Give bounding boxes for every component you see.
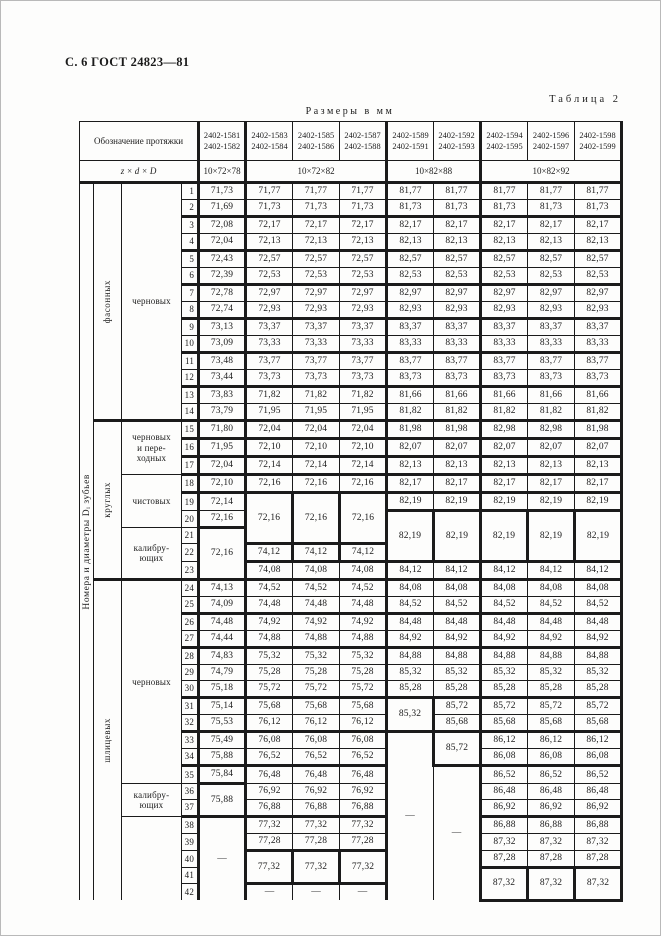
value-cell: 82,57 [481, 251, 528, 268]
value-cell: 82,17 [528, 217, 575, 234]
value-cell: 74,12 [246, 544, 293, 562]
value-cell: 84,52 [434, 597, 481, 614]
value-cell: 81,77 [434, 183, 481, 200]
size-cell: 10×72×82 [246, 161, 387, 183]
value-cell: 86,88 [575, 817, 622, 834]
value-cell: 84,12 [387, 562, 434, 580]
value-cell: 86,52 [481, 766, 528, 784]
value-cell: 72,57 [293, 251, 340, 268]
value-cell: 82,17 [387, 217, 434, 234]
value-cell: 81,66 [434, 387, 481, 404]
value-cell: 75,32 [246, 648, 293, 665]
value-cell: 87,32 [575, 834, 622, 851]
value-cell: 83,37 [575, 319, 622, 336]
value-cell: 75,68 [246, 698, 293, 715]
value-cell: 84,48 [387, 614, 434, 631]
value-cell: 82,17 [575, 217, 622, 234]
category-label [122, 817, 182, 901]
value-cell: 72,17 [246, 217, 293, 234]
value-cell: 87,28 [575, 851, 622, 868]
value-cell: 72,57 [246, 251, 293, 268]
row-number: 38 [182, 817, 199, 834]
value-cell: 85,32 [387, 698, 434, 732]
value-cell: 72,93 [293, 302, 340, 319]
value-cell: 83,33 [387, 336, 434, 353]
row-number: 10 [182, 336, 199, 353]
value-cell: 72,16 [199, 511, 246, 528]
value-cell: 85,28 [434, 681, 481, 698]
value-cell: 83,73 [434, 370, 481, 387]
value-cell: 84,48 [481, 614, 528, 631]
value-cell: 71,95 [340, 404, 387, 421]
value-cell: 72,57 [340, 251, 387, 268]
value-cell: 82,13 [528, 234, 575, 251]
value-cell: 77,32 [340, 851, 387, 884]
value-cell: 82,57 [528, 251, 575, 268]
value-cell: 75,88 [199, 784, 246, 817]
value-cell: 82,07 [575, 439, 622, 457]
value-cell: 71,95 [246, 404, 293, 421]
value-cell: 81,77 [481, 183, 528, 200]
value-cell: 76,52 [293, 749, 340, 766]
value-cell: 86,52 [528, 766, 575, 784]
value-cell: 72,04 [340, 421, 387, 439]
value-cell: 76,88 [340, 800, 387, 817]
value-cell: 76,92 [340, 784, 387, 800]
value-cell: 76,88 [293, 800, 340, 817]
value-cell: 84,48 [575, 614, 622, 631]
value-cell: 71,73 [246, 200, 293, 217]
value-cell: 71,73 [340, 200, 387, 217]
units-caption: Размеры в мм [79, 106, 621, 117]
value-cell: 82,57 [387, 251, 434, 268]
value-cell: 85,28 [575, 681, 622, 698]
value-cell: 84,12 [575, 562, 622, 580]
value-cell: 83,77 [387, 353, 434, 370]
value-cell: 82,19 [575, 511, 622, 562]
value-cell: 74,08 [293, 562, 340, 580]
value-cell: 85,68 [434, 715, 481, 732]
value-cell: 81,73 [387, 200, 434, 217]
value-cell: 72,93 [340, 302, 387, 319]
row-number: 34 [182, 749, 199, 766]
designation-header: Обозначение протяжки [80, 122, 199, 161]
value-cell: 84,88 [528, 648, 575, 665]
value-cell: 72,04 [199, 457, 246, 475]
value-cell: 82,13 [481, 234, 528, 251]
designation-cell: 2402-15962402-1597 [528, 122, 575, 161]
value-cell: 84,48 [528, 614, 575, 631]
value-cell: 84,08 [575, 580, 622, 597]
designation-cell: 2402-15872402-1588 [340, 122, 387, 161]
value-cell: 72,97 [246, 285, 293, 302]
row-number: 35 [182, 766, 199, 784]
value-cell: 86,92 [575, 800, 622, 817]
value-cell: 84,88 [434, 648, 481, 665]
row-number: 36 [182, 784, 199, 800]
value-cell: 81,77 [387, 183, 434, 200]
value-cell: 77,28 [293, 834, 340, 851]
value-cell: 83,37 [481, 319, 528, 336]
row-group-label: круглых [94, 421, 122, 580]
value-cell: 82,13 [481, 457, 528, 475]
value-cell: 82,19 [434, 511, 481, 562]
row-number: 7 [182, 285, 199, 302]
value-cell: 87,32 [575, 868, 622, 901]
value-cell: 76,12 [293, 715, 340, 732]
value-cell: 81,66 [575, 387, 622, 404]
value-cell: 71,73 [293, 200, 340, 217]
value-cell: 82,97 [481, 285, 528, 302]
value-cell: 86,88 [481, 817, 528, 834]
value-cell: 74,52 [246, 580, 293, 597]
value-cell: 73,77 [293, 353, 340, 370]
row-number: 18 [182, 475, 199, 493]
value-cell: 71,77 [246, 183, 293, 200]
value-cell: 83,33 [528, 336, 575, 353]
value-cell: 85,68 [575, 715, 622, 732]
category-label: черновых [122, 580, 182, 784]
value-cell: 72,10 [340, 439, 387, 457]
value-cell: 71,82 [246, 387, 293, 404]
value-cell: 74,48 [293, 597, 340, 614]
value-cell: 72,16 [293, 475, 340, 493]
designation-cell: 2402-15892402-1591 [387, 122, 434, 161]
value-cell: 71,77 [340, 183, 387, 200]
value-cell: 85,72 [481, 698, 528, 715]
value-cell: 74,92 [340, 614, 387, 631]
row-number: 13 [182, 387, 199, 404]
side-label: Номера и диаметры Dᵢ зубьев [80, 183, 94, 901]
value-cell: 73,48 [199, 353, 246, 370]
value-cell: 76,52 [246, 749, 293, 766]
value-cell: 82,97 [528, 285, 575, 302]
value-cell: 82,07 [528, 439, 575, 457]
value-cell: 82,53 [575, 268, 622, 285]
value-cell: 72,53 [340, 268, 387, 285]
value-cell: 82,17 [481, 217, 528, 234]
value-cell: 72,10 [246, 439, 293, 457]
value-cell: — [434, 766, 481, 901]
value-cell: 74,48 [199, 614, 246, 631]
row-number: 39 [182, 834, 199, 851]
value-cell: 72,14 [246, 457, 293, 475]
value-cell: 74,83 [199, 648, 246, 665]
value-cell: 87,32 [481, 868, 528, 901]
value-cell: 73,37 [293, 319, 340, 336]
value-cell: 72,13 [246, 234, 293, 251]
value-cell: 86,48 [575, 784, 622, 800]
row-number: 33 [182, 732, 199, 749]
value-cell: 73,77 [246, 353, 293, 370]
formula-cell: z × d × D [80, 161, 199, 183]
row-number: 26 [182, 614, 199, 631]
value-cell: 72,14 [293, 457, 340, 475]
value-cell: 82,93 [481, 302, 528, 319]
value-cell: 74,09 [199, 597, 246, 614]
value-cell: 73,33 [246, 336, 293, 353]
value-cell: 84,52 [387, 597, 434, 614]
row-number: 22 [182, 544, 199, 562]
value-cell: 85,28 [387, 681, 434, 698]
value-cell: 72,08 [199, 217, 246, 234]
category-label: калибру- ющих [122, 528, 182, 580]
value-cell: 74,88 [293, 631, 340, 648]
value-cell: 83,73 [575, 370, 622, 387]
value-cell: 72,16 [246, 493, 293, 544]
value-cell: 81,77 [528, 183, 575, 200]
value-cell: 82,57 [575, 251, 622, 268]
value-cell: 82,19 [387, 493, 434, 511]
value-cell: 83,33 [575, 336, 622, 353]
row-number: 2 [182, 200, 199, 217]
value-cell: 84,88 [575, 648, 622, 665]
value-cell: 73,33 [340, 336, 387, 353]
value-cell: 87,28 [528, 851, 575, 868]
value-cell: 85,32 [387, 665, 434, 681]
value-cell: 72,78 [199, 285, 246, 302]
value-cell: 75,68 [340, 698, 387, 715]
value-cell: 75,32 [340, 648, 387, 665]
value-cell: 72,97 [340, 285, 387, 302]
value-cell: 72,53 [246, 268, 293, 285]
value-cell: 75,28 [293, 665, 340, 681]
value-cell: 72,43 [199, 251, 246, 268]
value-cell: 76,92 [246, 784, 293, 800]
value-cell: 86,92 [481, 800, 528, 817]
value-cell: 82,98 [528, 421, 575, 439]
value-cell: 87,32 [481, 834, 528, 851]
value-cell: 84,08 [387, 580, 434, 597]
value-cell: 76,12 [246, 715, 293, 732]
scanned-document-page: С. 6 ГОСТ 24823—81 Таблица 2 Размеры в м… [0, 0, 661, 936]
value-cell: 82,13 [575, 234, 622, 251]
value-cell: 71,95 [199, 439, 246, 457]
value-cell: 71,73 [199, 183, 246, 200]
value-cell: 82,07 [434, 439, 481, 457]
value-cell: 84,08 [481, 580, 528, 597]
value-cell: 73,13 [199, 319, 246, 336]
value-cell: — [246, 884, 293, 901]
page-header: С. 6 ГОСТ 24823—81 [65, 55, 189, 70]
value-cell: 84,52 [575, 597, 622, 614]
value-cell: 85,68 [528, 715, 575, 732]
row-number: 11 [182, 353, 199, 370]
value-cell: 71,95 [293, 404, 340, 421]
row-number: 4 [182, 234, 199, 251]
size-cell: 10×72×78 [199, 161, 246, 183]
row-number: 19 [182, 493, 199, 511]
value-cell: 82,07 [387, 439, 434, 457]
value-cell: 72,14 [340, 457, 387, 475]
row-number: 42 [182, 884, 199, 901]
value-cell: 82,19 [434, 493, 481, 511]
value-cell: 72,13 [340, 234, 387, 251]
value-cell: 84,92 [575, 631, 622, 648]
value-cell: 82,97 [387, 285, 434, 302]
value-cell: 82,17 [481, 475, 528, 493]
value-cell: 77,32 [246, 817, 293, 834]
value-cell: 81,66 [481, 387, 528, 404]
value-cell: 74,08 [340, 562, 387, 580]
value-cell: 82,13 [575, 457, 622, 475]
value-cell: 85,72 [575, 698, 622, 715]
value-cell: 85,32 [481, 665, 528, 681]
value-cell: 85,72 [434, 698, 481, 715]
value-cell: 76,12 [340, 715, 387, 732]
value-cell: 77,28 [340, 834, 387, 851]
value-cell: 81,82 [481, 404, 528, 421]
category-label: черновых [122, 183, 182, 421]
value-cell: 75,28 [246, 665, 293, 681]
value-cell: 87,28 [481, 851, 528, 868]
value-cell: 72,17 [293, 217, 340, 234]
value-cell: 71,82 [340, 387, 387, 404]
row-number: 5 [182, 251, 199, 268]
value-cell: 73,73 [340, 370, 387, 387]
category-label: чистовых [122, 475, 182, 528]
value-cell: 71,80 [199, 421, 246, 439]
value-cell: 82,93 [575, 302, 622, 319]
value-cell: 76,48 [293, 766, 340, 784]
value-cell: 73,77 [340, 353, 387, 370]
value-cell: 75,18 [199, 681, 246, 698]
value-cell: 74,79 [199, 665, 246, 681]
value-cell: 84,92 [387, 631, 434, 648]
row-number: 30 [182, 681, 199, 698]
value-cell: 81,66 [528, 387, 575, 404]
value-cell: 86,12 [481, 732, 528, 749]
row-number: 8 [182, 302, 199, 319]
value-cell: 82,13 [387, 234, 434, 251]
value-cell: 85,32 [575, 665, 622, 681]
value-cell: 77,32 [246, 851, 293, 884]
value-cell: 72,16 [340, 493, 387, 544]
row-number: 40 [182, 851, 199, 868]
value-cell: 82,53 [481, 268, 528, 285]
value-cell: 77,28 [246, 834, 293, 851]
value-cell: 81,77 [575, 183, 622, 200]
value-cell: 82,57 [434, 251, 481, 268]
table-caption: Таблица 2 [79, 94, 621, 105]
value-cell: 86,88 [528, 817, 575, 834]
value-cell: 82,19 [481, 511, 528, 562]
value-cell: 83,37 [434, 319, 481, 336]
value-cell: 83,77 [481, 353, 528, 370]
value-cell: 71,77 [293, 183, 340, 200]
value-cell: 73,37 [246, 319, 293, 336]
value-cell: 86,48 [528, 784, 575, 800]
value-cell: 74,44 [199, 631, 246, 648]
row-group-label: фасонных [94, 183, 122, 421]
value-cell: 76,48 [340, 766, 387, 784]
value-cell: 85,68 [481, 715, 528, 732]
row-number: 25 [182, 597, 199, 614]
value-cell: 81,98 [575, 421, 622, 439]
value-cell: 81,98 [434, 421, 481, 439]
value-cell: 83,73 [481, 370, 528, 387]
value-cell: 75,72 [293, 681, 340, 698]
value-cell: 72,10 [293, 439, 340, 457]
designation-cell: 2402-15982402-1599 [575, 122, 622, 161]
value-cell: 73,09 [199, 336, 246, 353]
value-cell: 86,12 [528, 732, 575, 749]
value-cell: 84,88 [481, 648, 528, 665]
row-number: 3 [182, 217, 199, 234]
value-cell: 86,08 [528, 749, 575, 766]
row-number: 12 [182, 370, 199, 387]
value-cell: 72,16 [340, 475, 387, 493]
row-number: 16 [182, 439, 199, 457]
value-cell: 82,17 [575, 475, 622, 493]
value-cell: 83,73 [387, 370, 434, 387]
value-cell: 75,14 [199, 698, 246, 715]
value-cell: 84,08 [528, 580, 575, 597]
value-cell: 84,48 [434, 614, 481, 631]
value-cell: 82,13 [387, 457, 434, 475]
designation-cell: 2402-15812402-1582 [199, 122, 246, 161]
value-cell: 75,72 [246, 681, 293, 698]
value-cell: 85,32 [434, 665, 481, 681]
value-cell: 82,53 [528, 268, 575, 285]
value-cell: 86,08 [575, 749, 622, 766]
row-number: 23 [182, 562, 199, 580]
value-cell: 83,37 [528, 319, 575, 336]
value-cell: 72,39 [199, 268, 246, 285]
designation-cell: 2402-15942402-1595 [481, 122, 528, 161]
value-cell: 76,48 [246, 766, 293, 784]
value-cell: 81,66 [387, 387, 434, 404]
row-number: 37 [182, 800, 199, 817]
value-cell: 82,13 [434, 234, 481, 251]
value-cell: 76,92 [293, 784, 340, 800]
value-cell: 82,98 [481, 421, 528, 439]
value-cell: 72,16 [293, 493, 340, 544]
designation-cell: 2402-15922402-1593 [434, 122, 481, 161]
value-cell: 82,53 [387, 268, 434, 285]
row-number: 9 [182, 319, 199, 336]
value-cell: 76,08 [246, 732, 293, 749]
value-cell: 83,37 [387, 319, 434, 336]
value-cell: 74,48 [340, 597, 387, 614]
value-cell: 81,73 [575, 200, 622, 217]
value-cell: 86,12 [575, 732, 622, 749]
row-group-label: шлицевых [94, 580, 122, 901]
value-cell: 77,32 [293, 851, 340, 884]
value-cell: 73,73 [246, 370, 293, 387]
value-cell: 83,77 [575, 353, 622, 370]
row-number: 6 [182, 268, 199, 285]
value-cell: 74,13 [199, 580, 246, 597]
value-cell: 72,04 [246, 421, 293, 439]
value-cell: 74,12 [340, 544, 387, 562]
value-cell: 72,04 [293, 421, 340, 439]
value-cell: 82,07 [481, 439, 528, 457]
value-cell: 84,92 [434, 631, 481, 648]
value-cell: 82,17 [434, 475, 481, 493]
value-cell: 75,84 [199, 766, 246, 784]
value-cell: 86,08 [481, 749, 528, 766]
value-cell: 82,17 [528, 475, 575, 493]
row-number: 24 [182, 580, 199, 597]
row-number: 15 [182, 421, 199, 439]
size-cell: 10×82×92 [481, 161, 622, 183]
value-cell: 76,08 [293, 732, 340, 749]
value-cell: 75,32 [293, 648, 340, 665]
value-cell: 72,14 [199, 493, 246, 511]
designation-cell: 2402-15832402-1584 [246, 122, 293, 161]
value-cell: 84,92 [481, 631, 528, 648]
